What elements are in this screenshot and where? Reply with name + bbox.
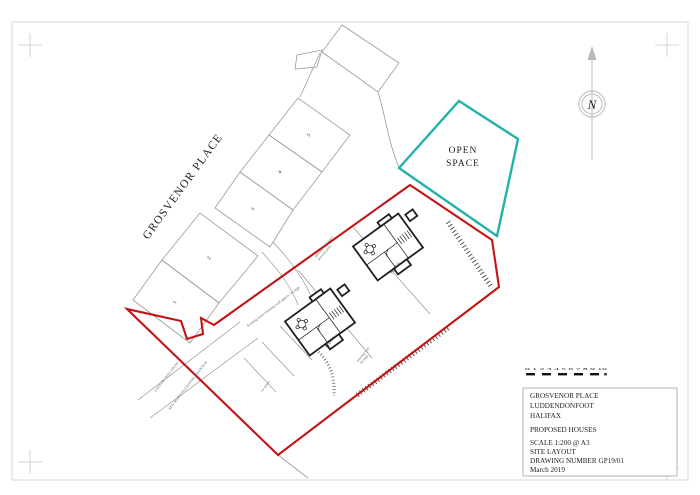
title-project-line3: HALIFAX: [530, 412, 562, 420]
fence-annotation-lower: Existing wall 1m high: [356, 346, 374, 365]
context-line: [300, 53, 320, 97]
open-space-label-line1: OPEN: [449, 146, 478, 156]
kerb-hatching: [316, 350, 334, 396]
open-space-label-line2: SPACE: [446, 159, 480, 169]
title-block: GROSVENOR PLACE LUDDENDONFOOT HALIFAX PR…: [523, 388, 677, 476]
drawing-sheet: 1 2 3 4 5 GROSVENOR PLACE OPEN SPACE: [0, 0, 700, 495]
parking-bay-line: [244, 358, 276, 392]
car-spaces-label: car spaces: [260, 379, 272, 392]
corner-cross-top-right-icon: [655, 33, 679, 57]
title-project-line1: GROSVENOR PLACE: [530, 392, 599, 400]
parking-bay-line: [262, 342, 294, 376]
title-scale: SCALE 1:200 @ A3: [530, 439, 590, 447]
footpath-curve: [378, 92, 399, 167]
scale-bar-segment: [558, 373, 567, 375]
title-drawing-number: DRAWING NUMBER GP19/01: [530, 457, 624, 465]
plot-number-3: 3: [251, 207, 257, 212]
retaining-wall-hatching: [448, 222, 492, 288]
context-line-tail: [278, 455, 308, 478]
street-name-label: GROSVENOR PLACE: [141, 131, 226, 241]
site-plan-canvas: 1 2 3 4 5 GROSVENOR PLACE OPEN SPACE: [0, 0, 700, 495]
title-date: March 2019: [530, 466, 565, 474]
scale-bar-segment: [526, 373, 535, 375]
scale-bar: 0 1 2 3 4 5 6 7 8 9 10: [525, 367, 609, 375]
plot-number-4: 4: [278, 170, 284, 175]
title-project-line2: LUDDENDONFOOT: [530, 402, 594, 410]
title-drawing-title: SITE LAYOUT: [530, 448, 576, 456]
scale-bar-segment: [574, 373, 583, 375]
foul-drain-annotation: EXISTING FOUL DRAIN: [154, 361, 180, 393]
plot-number-5: 5: [307, 133, 313, 138]
existing-building-annex-outline: [295, 50, 322, 69]
scale-bar-ticks: 0 1 2 3 4 5 6 7 8 9 10: [525, 367, 609, 371]
plot-number-2: 2: [207, 256, 213, 261]
north-arrow: N: [579, 46, 605, 160]
corner-cross-bottom-left-icon: [18, 450, 42, 474]
scale-bar-segment: [590, 373, 599, 375]
north-arrow-head-icon: [588, 46, 597, 60]
scale-bar-segment: [542, 373, 551, 375]
corner-cross-top-left-icon: [18, 33, 42, 57]
title-description: PROPOSED HOUSES: [530, 426, 597, 434]
plot-number-1: 1: [173, 300, 179, 305]
north-letter: N: [587, 97, 598, 112]
scale-bar-end-mark: [604, 373, 607, 375]
existing-building-outline: [322, 25, 399, 92]
